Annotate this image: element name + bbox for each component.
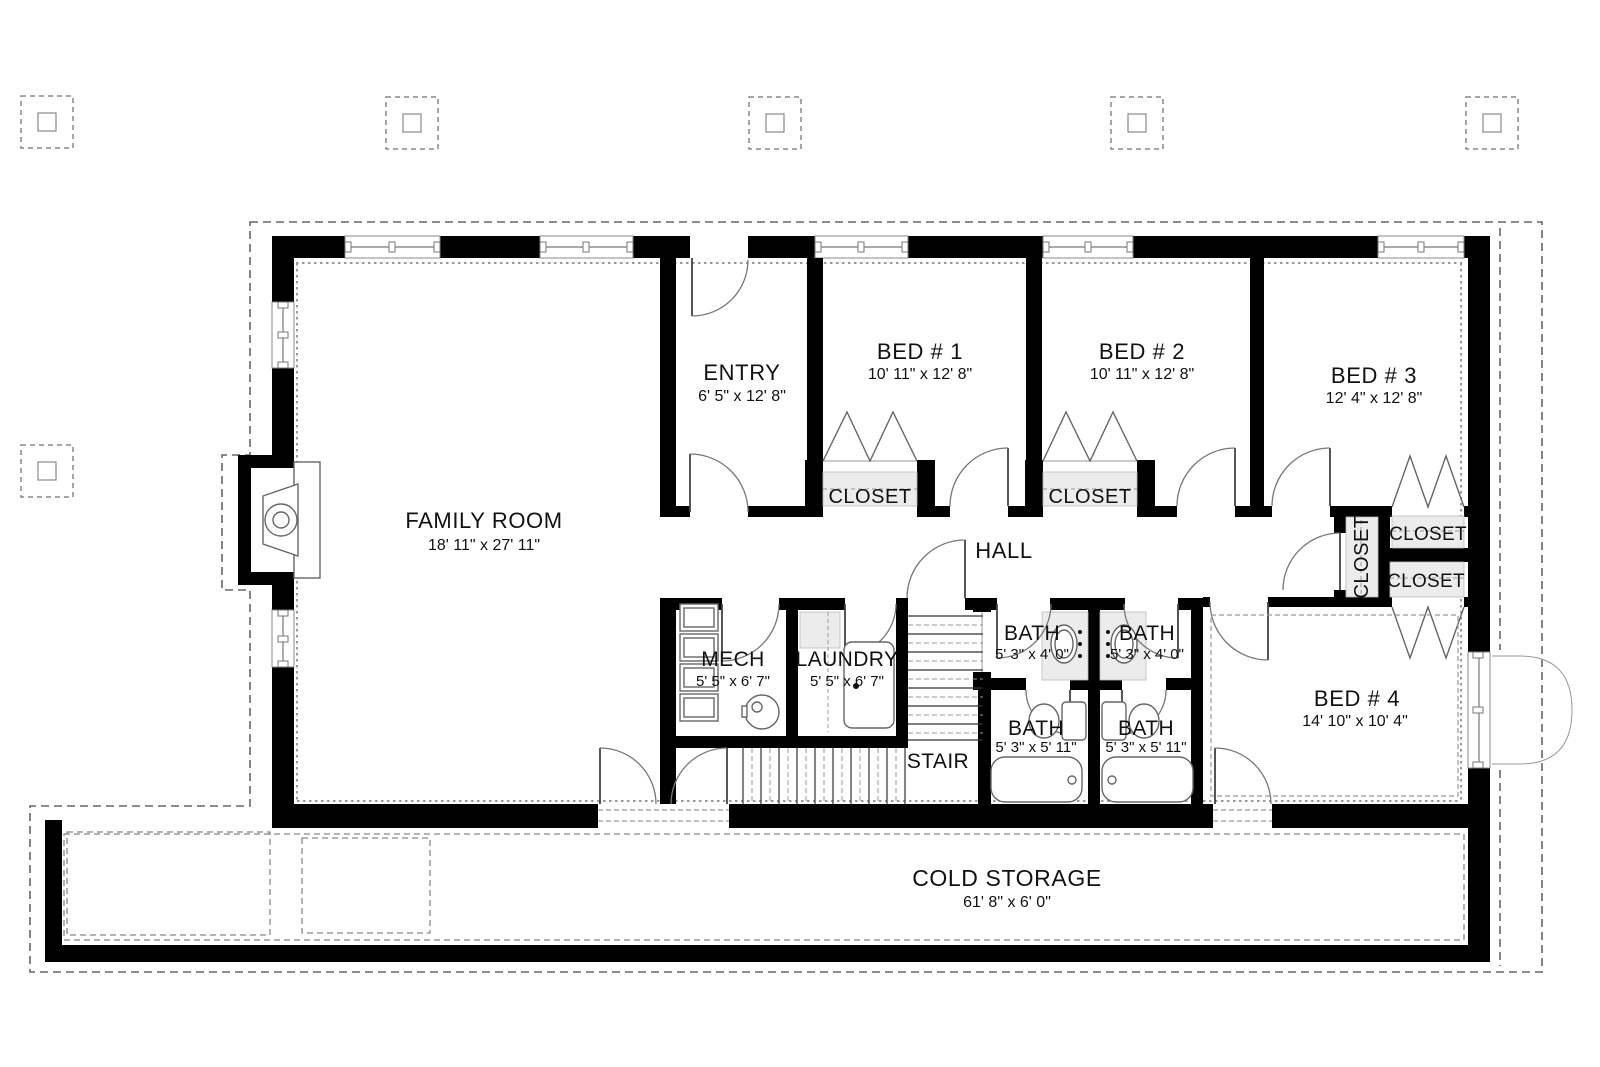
closet-bed1-label: CLOSET — [828, 486, 911, 508]
family-room-label: FAMILY ROOM — [405, 508, 562, 533]
bifold-closet-bed3 — [1392, 456, 1464, 507]
laundry-label: LAUNDRY — [796, 648, 899, 671]
door-linen-closet — [1283, 533, 1340, 590]
closet-linen-label: CLOSET — [1351, 515, 1373, 598]
water-heater — [742, 695, 779, 729]
bath-lower-right-dims: 5' 3" x 5' 11" — [1105, 739, 1186, 756]
cold-storage-label: COLD STORAGE — [912, 865, 1102, 891]
window-right-egress — [1468, 652, 1490, 768]
bath-lower-right-label: BATH — [1118, 717, 1174, 740]
bifold-closet-bed2 — [1043, 412, 1137, 461]
laundry-dims: 5' 5" x 6' 7" — [810, 673, 884, 690]
bifold-closet-bed1 — [823, 412, 917, 461]
entry-label: ENTRY — [703, 360, 780, 385]
family-room-dims: 18' 11" x 27' 11" — [428, 537, 540, 554]
entry-dims: 6' 5" x 12' 8" — [698, 388, 786, 405]
door-stair — [907, 540, 965, 598]
door-bed4 — [1210, 602, 1268, 660]
bed1-dims: 10' 11" x 12' 8" — [868, 366, 972, 383]
window-well — [1492, 656, 1572, 764]
bed3-dims: 12' 4" x 12' 8" — [1326, 390, 1423, 407]
mech-dims: 5' 5" x 6' 7" — [696, 673, 770, 690]
bath-lower-left-dims: 5' 3" x 5' 11" — [995, 739, 1076, 756]
bed4-label: BED # 4 — [1314, 686, 1400, 711]
bath-lower-left-label: BATH — [1008, 717, 1064, 740]
closet-bed4-label: CLOSET — [1387, 571, 1465, 592]
stair-label: STAIR — [907, 750, 969, 773]
doors — [600, 258, 1340, 804]
cold-storage-dashed-lines — [64, 832, 1464, 940]
door-family-cold-right — [671, 748, 727, 804]
bath-upper-right-dims: 5' 3" x 4' 0" — [1110, 646, 1184, 663]
mech-label: MECH — [701, 648, 764, 671]
closet-bed3-label: CLOSET — [1389, 524, 1467, 545]
bathtub-right — [1102, 757, 1193, 802]
window-top-1 — [345, 236, 440, 258]
bed2-dims: 10' 11" x 12' 8" — [1090, 366, 1194, 383]
fireplace — [263, 462, 320, 578]
bed2-label: BED # 2 — [1099, 339, 1185, 364]
door-bed3 — [1272, 448, 1330, 506]
bed4-dims: 14' 10" x 10' 4" — [1302, 713, 1408, 730]
window-top-5 — [1378, 236, 1464, 258]
door-bed2 — [1177, 448, 1235, 506]
bath-upper-left-label: BATH — [1004, 622, 1060, 645]
closet-bed2-label: CLOSET — [1048, 486, 1131, 508]
bathtub-left — [991, 757, 1082, 802]
door-entry-exterior — [692, 258, 748, 316]
floor-plan-page: FAMILY ROOM 18' 11" x 27' 11" ENTRY 6' 5… — [0, 0, 1600, 1067]
window-top-4 — [1043, 236, 1133, 258]
footing-pad-markers — [21, 96, 1518, 497]
door-entry-hall — [690, 454, 748, 512]
door-bed1 — [950, 448, 1008, 506]
window-top-3 — [815, 236, 908, 258]
window-left-1 — [272, 302, 294, 368]
bath-upper-right-label: BATH — [1119, 622, 1175, 645]
bath-upper-left-dims: 5' 3" x 4' 0" — [995, 646, 1069, 663]
bed3-label: BED # 3 — [1331, 363, 1417, 388]
window-left-2 — [272, 610, 294, 667]
cold-storage-dims: 61' 8" x 6' 0" — [963, 894, 1051, 911]
window-top-2 — [540, 236, 633, 258]
floor-plan-drawing: FAMILY ROOM 18' 11" x 27' 11" ENTRY 6' 5… — [0, 0, 1600, 1067]
hall-label: HALL — [975, 538, 1032, 563]
bed1-label: BED # 1 — [877, 339, 963, 364]
door-family-cold-left — [600, 748, 656, 804]
